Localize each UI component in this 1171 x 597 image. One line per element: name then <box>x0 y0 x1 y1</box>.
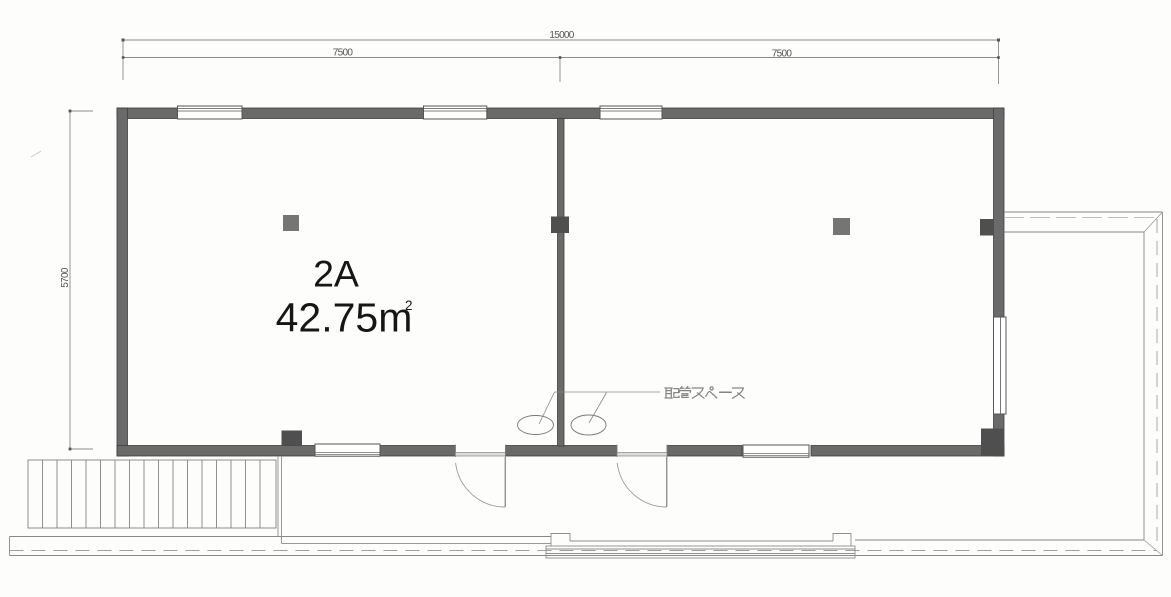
svg-text:7500: 7500 <box>333 48 354 59</box>
svg-text:42.75m: 42.75m <box>276 295 413 341</box>
svg-text:7500: 7500 <box>772 48 793 59</box>
svg-text:5700: 5700 <box>60 267 71 288</box>
svg-text:15000: 15000 <box>549 30 574 41</box>
svg-text:2: 2 <box>405 298 413 313</box>
svg-text:2A: 2A <box>313 253 359 295</box>
